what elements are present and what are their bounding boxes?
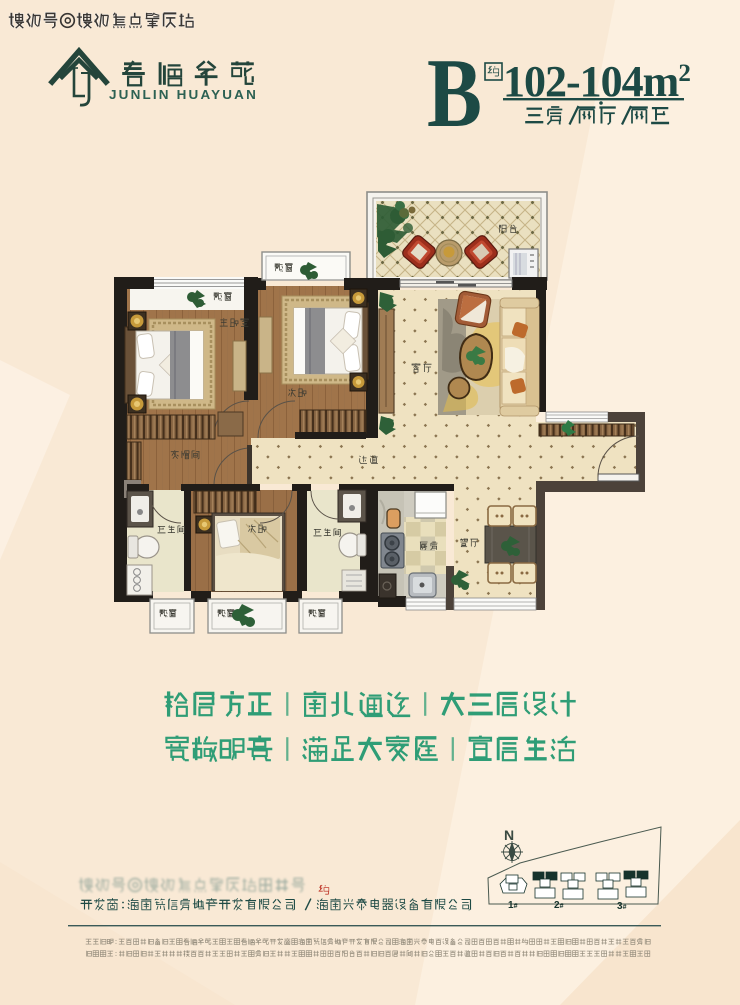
svg-text:JUNLIN HUAYUAN: JUNLIN HUAYUAN bbox=[109, 87, 258, 102]
svg-text:B: B bbox=[427, 39, 482, 148]
svg-text:N: N bbox=[504, 827, 514, 843]
